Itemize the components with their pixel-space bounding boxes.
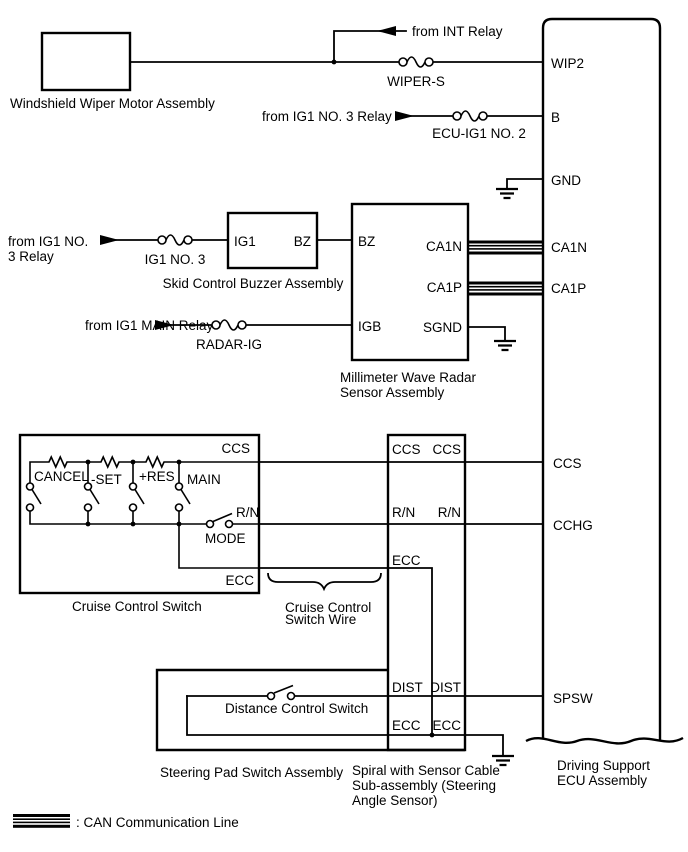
res-switch-icon <box>130 483 145 511</box>
radar-label-line2: Sensor Assembly <box>340 385 445 400</box>
arrow-left-icon <box>377 26 396 36</box>
radar-terminal-sgnd: SGND <box>423 320 462 335</box>
fuse-ecu-ig1-icon <box>453 111 487 121</box>
wiring-diagram-page: WIP2 B GND CA1N CA1P CCS CCHG SPSW Drivi… <box>0 0 688 852</box>
spiral-ecc-right: ECC <box>432 718 461 733</box>
radar-terminal-bz: BZ <box>358 234 375 249</box>
fuse-wiper-s-icon <box>399 57 433 67</box>
cruise-ecc-label: ECC <box>225 573 254 588</box>
spiral-dist-right: DIST <box>430 680 461 695</box>
wip2-circuit: from INT Relay WIPER-S <box>130 24 543 89</box>
buzzer-terminal-ig1: IG1 <box>234 234 256 249</box>
ecu-terminal-spsw: SPSW <box>553 691 593 706</box>
gnd-circuit <box>496 179 543 198</box>
spiral-label-line2: Sub-assembly (Steering <box>352 778 496 793</box>
wiper-motor-label: Windshield Wiper Motor Assembly <box>10 96 215 111</box>
buzzer-circuit: from IG1 NO. 3 Relay IG1 NO. 3 IG1 BZ Sk… <box>8 213 352 291</box>
spiral-label-line3: Angle Sensor) <box>352 793 438 808</box>
ecu-terminal-b: B <box>551 110 560 125</box>
buzzer-terminal-bz: BZ <box>294 234 311 249</box>
radar-terminal-ca1p: CA1P <box>427 280 462 295</box>
fuse-wiper-s-label: WIPER-S <box>387 74 445 89</box>
cruise-ccs-label: CCS <box>221 441 250 456</box>
spiral-ccs-right: CCS <box>432 442 461 457</box>
cruise-box <box>20 435 259 593</box>
can-line-ca1p <box>468 282 543 296</box>
spiral-dist-left: DIST <box>392 680 423 695</box>
res-label: +RES <box>139 469 175 484</box>
fuse-ig1-no3-label: IG1 NO. 3 <box>145 252 206 267</box>
spiral-ecc-left: ECC <box>392 718 421 733</box>
wiper-motor: Windshield Wiper Motor Assembly <box>10 33 215 111</box>
cruise-control-switch: CCS CANCEL -SET +RES MAIN R/N <box>20 435 259 614</box>
distance-switch-icon <box>268 686 295 700</box>
b-circuit: from IG1 NO. 3 Relay ECU-IG1 NO. 2 <box>262 109 543 141</box>
ecu-terminal-wip2: WIP2 <box>551 56 584 71</box>
spiral-ecc: ECC <box>392 553 421 568</box>
ig1-no3-relay-label-line2: 3 Relay <box>8 249 54 264</box>
ground-icon <box>496 189 518 198</box>
cancel-label: CANCEL <box>34 469 89 484</box>
rn-label: R/N <box>236 505 259 520</box>
fuse-radar-ig-label: RADAR-IG <box>196 337 262 352</box>
ecu-terminal-ca1p: CA1P <box>551 281 586 296</box>
legend-can-label: : CAN Communication Line <box>76 815 239 830</box>
spiral-rn-right: R/N <box>438 505 461 520</box>
mode-label: MODE <box>205 531 246 546</box>
ig1-no3-relay-label: from IG1 NO. 3 Relay <box>262 109 392 124</box>
steering-pad-label: Steering Pad Switch Assembly <box>160 765 343 780</box>
radar-label-line1: Millimeter Wave Radar <box>340 370 477 385</box>
ground-icon <box>494 341 516 350</box>
ecu-terminal-ca1n: CA1N <box>551 240 587 255</box>
can-line-legend-icon <box>13 814 70 828</box>
ig1-no3-relay-label-line1: from IG1 NO. <box>8 234 88 249</box>
driving-support-ecu-box: WIP2 B GND CA1N CA1P CCS CCHG SPSW Drivi… <box>526 19 683 788</box>
switch-wire-callout: Cruise Control Switch Wire <box>268 573 381 627</box>
fuse-ecu-ig1-label: ECU-IG1 NO. 2 <box>432 126 526 141</box>
junction-dot <box>332 60 337 65</box>
int-relay-label: from INT Relay <box>412 24 503 39</box>
set-switch-icon <box>85 483 100 511</box>
spiral-cable: CCS CCS R/N R/N ECC DIST DIST ECC ECC Sp… <box>352 435 500 808</box>
spiral-box <box>388 435 465 750</box>
fuse-radar-ig-icon <box>212 320 246 330</box>
junction-dot <box>430 733 435 738</box>
spiral-label-line1: Spiral with Sensor Cable <box>352 763 500 778</box>
buzzer-label: Skid Control Buzzer Assembly <box>163 276 344 291</box>
main-switch-icon <box>176 483 191 511</box>
radar-sensor: BZ CA1N CA1P IGB SGND Millimeter Wave Ra… <box>340 204 516 400</box>
legend: : CAN Communication Line <box>13 814 239 830</box>
switch-wire-label-line2: Switch Wire <box>285 612 356 627</box>
ecu-terminal-ccs: CCS <box>553 456 582 471</box>
ecu-label-line1: Driving Support <box>557 758 650 773</box>
cruise-box-label: Cruise Control Switch <box>72 599 202 614</box>
can-line-ca1n <box>468 241 543 255</box>
radar-terminal-igb: IGB <box>358 319 381 334</box>
brace-icon <box>268 573 381 589</box>
ecu-terminal-cchg: CCHG <box>553 518 593 533</box>
ecu-label-line2: ECU Assembly <box>557 773 647 788</box>
main-label: MAIN <box>187 472 221 487</box>
fuse-ig1-no3-icon <box>158 235 192 245</box>
ecu-terminal-gnd: GND <box>551 173 581 188</box>
radar-terminal-ca1n: CA1N <box>426 239 462 254</box>
distance-switch-label: Distance Control Switch <box>225 701 368 716</box>
spiral-ccs-left: CCS <box>392 442 421 457</box>
wiring-diagram: WIP2 B GND CA1N CA1P CCS CCHG SPSW Drivi… <box>0 0 688 852</box>
cancel-switch-icon <box>27 483 42 511</box>
igb-circuit: from IG1 MAIN Relay RADAR-IG <box>85 318 352 352</box>
spiral-rn-left: R/N <box>392 505 415 520</box>
set-label: -SET <box>91 472 122 487</box>
sgnd-wire <box>468 327 505 341</box>
